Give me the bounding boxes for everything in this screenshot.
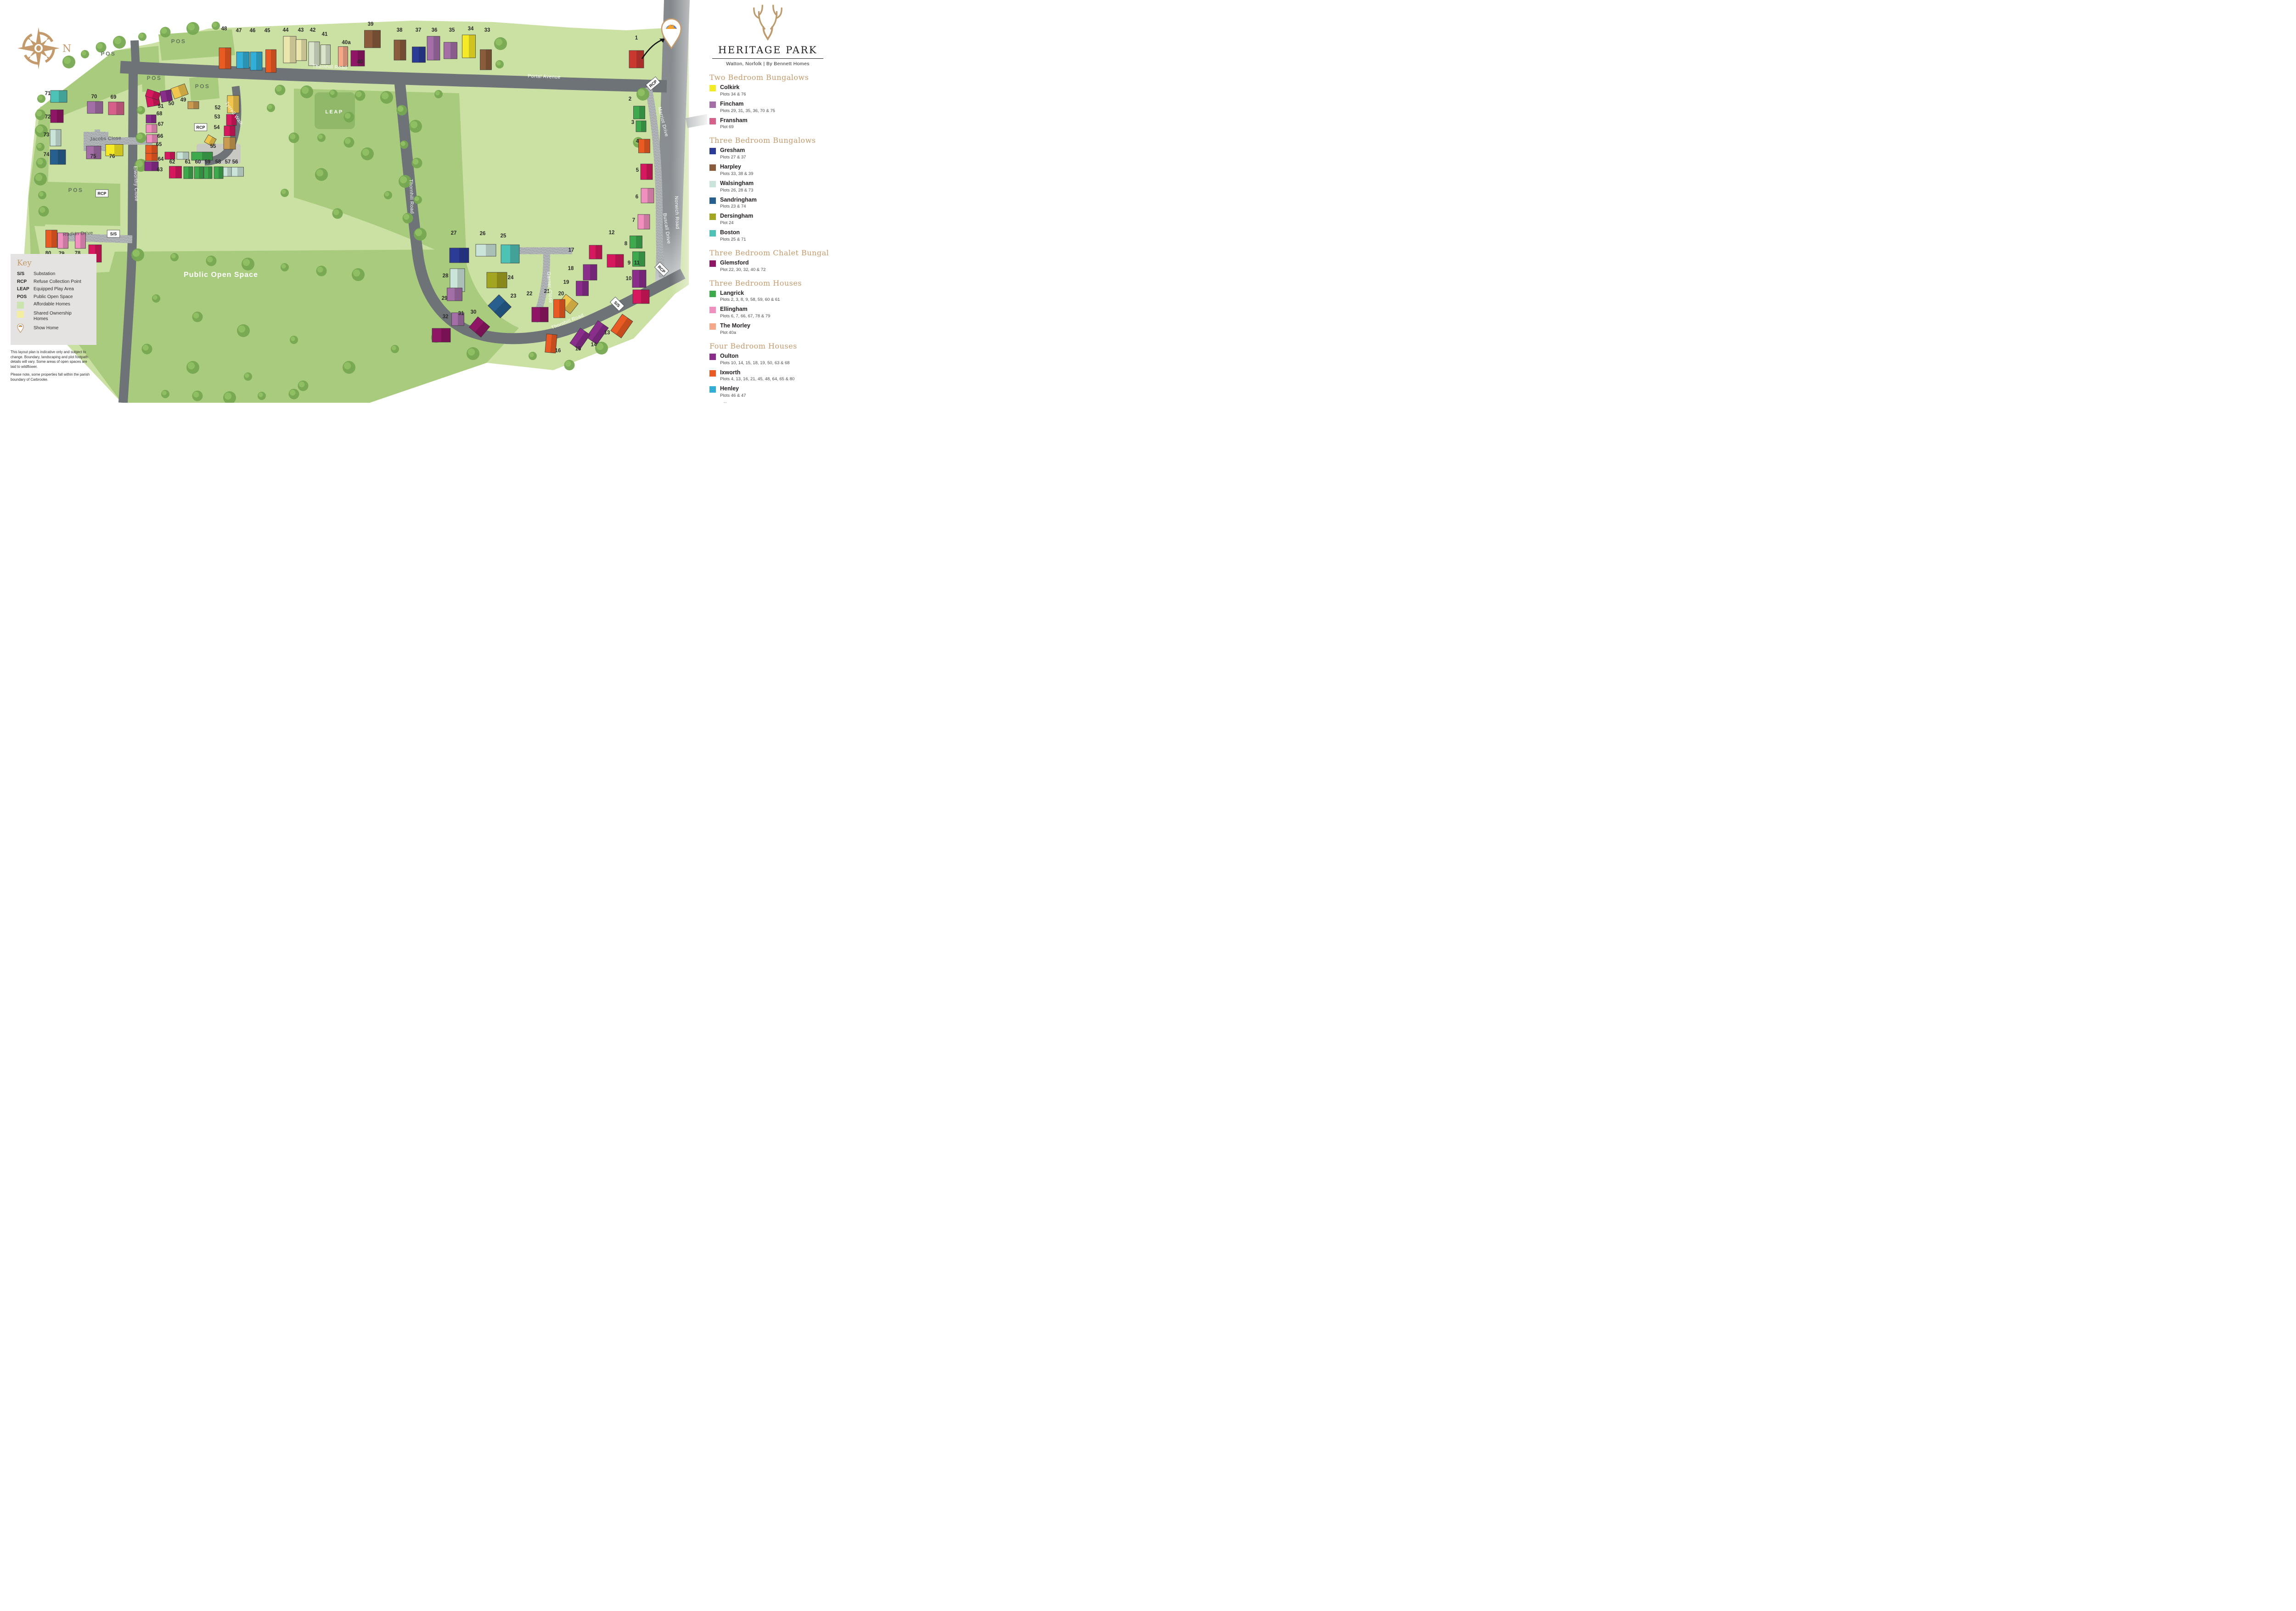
dersingham-color-swatch: [709, 214, 716, 220]
plot-label-43: 43: [298, 28, 304, 33]
house-plot-71: [51, 90, 67, 102]
plot-label-37: 37: [416, 28, 422, 33]
house-plot-74: [50, 150, 66, 164]
plot-label-4: 4: [636, 139, 639, 144]
house-plot-59: [204, 167, 212, 179]
ellingham-color-swatch: [709, 307, 716, 313]
plot-label-39: 39: [368, 22, 374, 27]
house-type-plots: Plots 2, 3, 8, 9, 58, 59, 60 & 61: [720, 297, 780, 302]
plot-label-56: 56: [232, 159, 238, 165]
boston-color-swatch: [709, 230, 716, 237]
house-type-name: Glemsford: [720, 260, 765, 266]
house-plot-18: [583, 265, 597, 280]
plot-label-24: 24: [508, 275, 514, 281]
plot-label-1: 1: [635, 35, 638, 41]
plot-label-35: 35: [449, 28, 455, 33]
plot-label-67: 67: [158, 122, 164, 127]
house-plot-24: [487, 272, 507, 288]
key-label-leap: Equipped Play Area: [34, 287, 74, 292]
plot-label-9: 9: [628, 260, 630, 266]
plot-label-40: 40: [357, 59, 363, 65]
plot-label-70: 70: [91, 94, 97, 100]
section-heading-2: Three Bedroom Chalet Bungalows: [709, 248, 827, 257]
house-plot-46: [250, 52, 262, 70]
plot-label-76: 76: [109, 154, 115, 159]
plot-label-26: 26: [480, 231, 486, 237]
legend-item-fransham: FranshamPlot 69: [709, 118, 827, 130]
house-type-name: Fincham: [720, 101, 775, 107]
edge-fade: [671, 0, 713, 403]
marker-rcp: RCP: [96, 190, 108, 197]
section-heading-1: Three Bedroom Bungalows: [709, 136, 827, 145]
colkirk-color-swatch: [709, 85, 716, 91]
house-extra-5: [188, 101, 199, 109]
house-type-name: Flixton: [720, 402, 794, 403]
plot-label-55: 55: [210, 144, 216, 149]
map-key: Key S/S Substation RCP Refuse Collection…: [11, 254, 96, 345]
house-plot-58: [214, 167, 223, 179]
area-label-public-open-space: Public Open Space: [184, 271, 258, 279]
house-plot-6: [641, 188, 654, 203]
svg-text:RCP: RCP: [97, 192, 106, 196]
house-type-plots: Plots 23 & 74: [720, 204, 757, 209]
marker-rcp: RCP: [194, 124, 207, 131]
house-plot-41: [321, 45, 331, 65]
fransham-color-swatch: [709, 118, 716, 124]
plot-label-36: 36: [432, 28, 438, 33]
house-type-plots: Plots 4, 13, 16, 21, 45, 48, 64, 65 & 80: [720, 377, 794, 382]
plot-label-16: 16: [555, 348, 561, 354]
legend-item-fincham: FinchamPlots 29, 31, 35, 36, 70 & 75: [709, 101, 827, 113]
area-label-pos: POS: [147, 75, 162, 81]
shared-ownership-swatch: [17, 311, 24, 318]
house-type-name: Gresham: [720, 147, 746, 154]
house-type-name: Harpley: [720, 164, 753, 170]
plot-label-3: 3: [631, 120, 634, 125]
house-type-plots: Plots 34 & 76: [720, 92, 746, 97]
plot-label-48: 48: [221, 26, 227, 32]
plot-label-52: 52: [215, 105, 221, 111]
plot-label-17: 17: [568, 248, 574, 253]
gresham-color-swatch: [709, 148, 716, 154]
key-label-shared-ownership: Shared Ownership Homes: [34, 311, 75, 321]
house-type-plots: Plots 33, 38 & 39: [720, 171, 753, 176]
plot-label-68: 68: [157, 111, 163, 117]
plot-label-75: 75: [90, 154, 96, 159]
house-type-name: Colkirk: [720, 84, 746, 91]
house-plot-61: [184, 167, 193, 179]
house-plot-67: [146, 124, 157, 133]
plot-label-73: 73: [44, 132, 50, 138]
plot-label-69: 69: [111, 95, 117, 100]
section-heading-4: Four Bedroom Houses: [709, 342, 827, 350]
legend-item-langrick: LangrickPlots 2, 3, 8, 9, 58, 59, 60 & 6…: [709, 290, 827, 303]
road-label-jacobs-close: Jacobs Close: [90, 135, 121, 142]
plot-label-51: 51: [158, 104, 164, 109]
house-plot-4: [639, 139, 650, 153]
key-label-pos: Public Open Space: [34, 294, 73, 300]
legend-item-boston: BostonPlots 25 & 71: [709, 230, 827, 242]
plot-label-42: 42: [310, 28, 316, 33]
walsingham-color-swatch: [709, 181, 716, 187]
henley-color-swatch: [709, 386, 716, 393]
house-extra-1: [177, 152, 189, 159]
key-title: Key: [17, 259, 92, 268]
house-plot-45: [266, 50, 276, 73]
plot-label-57: 57: [225, 159, 231, 165]
house-plot-56: [231, 167, 244, 176]
plot-label-28: 28: [443, 273, 449, 279]
area-label-pos: POS: [68, 187, 84, 193]
plot-label-58: 58: [215, 159, 221, 165]
house-plot-63: [145, 162, 158, 171]
plot-label-38: 38: [397, 28, 403, 33]
house-plot-3: [636, 121, 646, 132]
plot-label-54: 54: [214, 125, 220, 130]
house-type-plots: Plot 69: [720, 124, 748, 130]
area-label-leap: LEAP: [325, 109, 343, 115]
svg-text:RCP: RCP: [196, 125, 205, 130]
plot-label-33: 33: [484, 28, 490, 33]
house-plot-36: [427, 36, 440, 60]
legend-item-gresham: GreshamPlots 27 & 37: [709, 147, 827, 160]
plot-label-15: 15: [575, 346, 581, 352]
house-plot-29: [447, 288, 462, 301]
plot-label-18: 18: [568, 266, 574, 271]
legend-item-dersingham: DersinghamPlot 24: [709, 213, 827, 225]
marker-ss: S/S: [107, 230, 120, 237]
plot-label-25: 25: [501, 233, 506, 239]
plot-label-29: 29: [442, 296, 448, 301]
house-plot-12: [633, 290, 649, 304]
key-label-substation: Substation: [34, 271, 55, 277]
plot-label-8: 8: [625, 241, 628, 247]
legend-item-ellingham: EllinghamPlots 6, 7, 66, 67, 78 & 79: [709, 306, 827, 319]
plot-label-65: 65: [156, 142, 162, 147]
section-heading-3: Three Bedroom Houses: [709, 279, 827, 287]
plot-label-47: 47: [236, 28, 242, 34]
house-plot-27: [450, 248, 469, 263]
title-divider: [712, 58, 823, 59]
show-home-pin-icon: [17, 324, 24, 333]
langrick-color-swatch: [709, 291, 716, 297]
legend-item-walsingham: WalsinghamPlots 26, 28 & 73: [709, 180, 827, 193]
house-plot-7: [638, 214, 650, 229]
house-plot-11: [607, 254, 624, 267]
key-label-affordable: Affordable Homes: [34, 302, 70, 307]
house-type-plots: Plot 22, 30, 32, 40 & 72: [720, 267, 765, 272]
house-plot-50: [160, 90, 173, 102]
area-label-pos: POS: [195, 83, 210, 90]
house-extra-0: [165, 152, 175, 159]
compass-north-label: N: [62, 43, 71, 55]
house-plot-40a: [338, 47, 348, 67]
ixworth-color-swatch: [709, 370, 716, 377]
legend-item-flixton: FlixtonPlots 5, 11, 12, 17, 51, 53, 54, …: [709, 402, 827, 403]
site-subtitle: Watton, Norfolk | By Bennett Homes: [709, 61, 827, 67]
antlers-logo-icon: [747, 5, 788, 40]
plot-label-66: 66: [158, 134, 163, 139]
plot-label-41: 41: [322, 32, 328, 37]
plot-label-62: 62: [169, 159, 175, 165]
legend-item-sandringham: SandringhamPlots 23 & 74: [709, 197, 827, 209]
plot-label-45: 45: [264, 28, 270, 34]
house-plot-2: [634, 106, 645, 119]
oulton-color-swatch: [709, 354, 716, 360]
house-plot-19: [576, 281, 589, 296]
plot-label-34: 34: [468, 26, 474, 32]
house-plot-64: [146, 152, 158, 161]
plot-label-20: 20: [558, 291, 564, 297]
legend-item-colkirk: ColkirkPlots 34 & 76: [709, 84, 827, 97]
glemsford-color-swatch: [709, 260, 716, 267]
plot-label-5: 5: [636, 168, 639, 173]
house-plot-5: [641, 164, 653, 180]
plot-label-46: 46: [250, 28, 256, 34]
house-plot-60: [194, 167, 203, 179]
house-plot-57: [223, 167, 231, 176]
plot-label-27: 27: [451, 231, 457, 236]
key-code-pos: POS: [17, 294, 34, 299]
key-code-leap: LEAP: [17, 287, 34, 292]
house-type-plots: Plots 29, 31, 35, 36, 70 & 75: [720, 108, 775, 113]
legend-item-henley: HenleyPlots 46 & 47: [709, 386, 827, 398]
house-plot-37: [412, 47, 426, 62]
house-plot-70: [87, 101, 103, 113]
house-plot-25: [501, 245, 519, 263]
house-type-plots: Plots 46 & 47: [720, 393, 746, 398]
house-plot-69: [108, 102, 124, 115]
house-plot-26: [476, 244, 496, 256]
sandringham-color-swatch: [709, 197, 716, 204]
morley-color-swatch: [709, 323, 716, 330]
house-plot-80: [46, 230, 57, 248]
house-plot-73: [50, 130, 61, 146]
plot-label-40a: 40a: [342, 40, 351, 45]
house-plot-17: [589, 245, 602, 259]
house-type-name: Ellingham: [720, 306, 770, 313]
site-title: HERITAGE PARK: [709, 45, 827, 56]
house-plot-39: [365, 30, 381, 48]
legend-item-glemsford: GlemsfordPlot 22, 30, 32, 40 & 72: [709, 260, 827, 272]
plot-label-71: 71: [45, 91, 51, 96]
plot-label-50: 50: [169, 101, 174, 107]
house-type-plots: Plots 25 & 71: [720, 237, 746, 242]
house-plot-62: [169, 166, 182, 178]
house-plot-33: [480, 50, 492, 70]
affordable-homes-swatch: [17, 302, 24, 309]
house-type-plots: Plots 6, 7, 66, 67, 78 & 79: [720, 314, 770, 319]
plot-label-19: 19: [563, 280, 569, 285]
house-plot-48: [219, 48, 231, 69]
plot-label-63: 63: [157, 167, 163, 173]
house-plot-35: [444, 42, 457, 59]
plot-label-59: 59: [205, 159, 211, 165]
house-type-name: The Morley: [720, 323, 750, 329]
house-plot-1: [629, 51, 644, 68]
house-plot-22: [532, 307, 548, 322]
house-type-plots: Plot 24: [720, 220, 753, 225]
key-label-rcp: Refuse Collection Point: [34, 279, 81, 285]
house-type-name: Oulton: [720, 353, 790, 360]
plot-label-14: 14: [591, 342, 597, 348]
legend-sidebar: HERITAGE PARK Watton, Norfolk | By Benne…: [707, 0, 829, 403]
plot-label-60: 60: [195, 159, 201, 165]
harpley-color-swatch: [709, 164, 716, 171]
plot-label-31: 31: [458, 311, 464, 316]
disclaimer-paragraph-1: This layout plan is indicative only and …: [11, 350, 91, 369]
house-type-name: Walsingham: [720, 180, 754, 187]
key-code-rcp: RCP: [17, 279, 34, 284]
house-plot-72: [51, 110, 63, 123]
plot-label-22: 22: [527, 291, 533, 297]
plot-label-53: 53: [214, 114, 220, 120]
plot-label-72: 72: [45, 114, 51, 120]
house-plot-34: [462, 35, 476, 58]
site-plan-map[interactable]: 484746454443424140a403938373635343312345…: [0, 0, 829, 403]
house-plot-44: [283, 36, 296, 63]
plot-label-7: 7: [632, 218, 635, 223]
plot-label-74: 74: [44, 152, 50, 158]
house-plot-54: [224, 126, 235, 136]
key-code-ss: S/S: [17, 271, 34, 276]
fincham-color-swatch: [709, 101, 716, 108]
plot-label-13: 13: [604, 330, 610, 336]
plot-label-6: 6: [636, 194, 638, 200]
house-type-plots: Plot 40a: [720, 330, 750, 335]
plot-label-49: 49: [180, 97, 186, 103]
plot-label-10: 10: [626, 276, 632, 282]
plot-label-23: 23: [511, 293, 517, 299]
legend-item-oulton: OultonPlots 10, 14, 15, 18, 19, 50, 63 &…: [709, 353, 827, 366]
area-label-pos: POS: [171, 38, 186, 45]
plot-label-61: 61: [185, 159, 191, 165]
house-type-name: Boston: [720, 230, 746, 236]
legend-item-harpley: HarpleyPlots 33, 38 & 39: [709, 164, 827, 176]
plot-label-64: 64: [158, 157, 164, 162]
area-label-pos: POS: [101, 51, 116, 57]
house-plot-10: [632, 270, 646, 287]
plot-label-32: 32: [443, 314, 449, 320]
house-plot-42: [309, 42, 320, 66]
house-type-name: Sandringham: [720, 197, 757, 203]
plot-label-11: 11: [634, 260, 640, 266]
house-type-name: Henley: [720, 386, 746, 392]
house-plot-38: [394, 40, 406, 60]
legend-item-ixworth: IxworthPlots 4, 13, 16, 21, 45, 48, 64, …: [709, 370, 827, 382]
house-plot-43: [296, 39, 307, 61]
road-label-portal-avenue: Portal Avenue: [528, 73, 561, 80]
house-plot-21: [554, 299, 565, 318]
house-type-plots: Plots 26, 28 & 73: [720, 188, 754, 193]
heritage-park-siteplan-page: 484746454443424140a403938373635343312345…: [0, 0, 829, 403]
plot-label-44: 44: [283, 28, 289, 33]
legend-item-the-morley: The MorleyPlot 40a: [709, 323, 827, 335]
house-plot-47: [236, 52, 249, 68]
house-type-plots: Plots 10, 14, 15, 18, 19, 50, 63 & 68: [720, 361, 790, 366]
disclaimer: This layout plan is indicative only and …: [11, 350, 91, 385]
house-type-name: Fransham: [720, 118, 748, 124]
plot-label-2: 2: [629, 96, 631, 102]
disclaimer-paragraph-2: Please note, some properties fall within…: [11, 372, 91, 382]
house-type-plots: Plots 27 & 37: [720, 155, 746, 160]
plot-label-30: 30: [471, 310, 477, 315]
house-type-name: Langrick: [720, 290, 780, 297]
house-plot-8: [630, 236, 642, 248]
house-plot-68: [146, 115, 156, 123]
house-type-name: Ixworth: [720, 370, 794, 376]
svg-text:S/S: S/S: [110, 232, 117, 237]
key-label-show-home: Show Home: [34, 326, 58, 331]
house-type-name: Dersingham: [720, 213, 753, 220]
section-heading-0: Two Bedroom Bungalows: [709, 73, 827, 82]
house-plot-55: [224, 137, 236, 149]
plot-label-12: 12: [609, 230, 615, 236]
